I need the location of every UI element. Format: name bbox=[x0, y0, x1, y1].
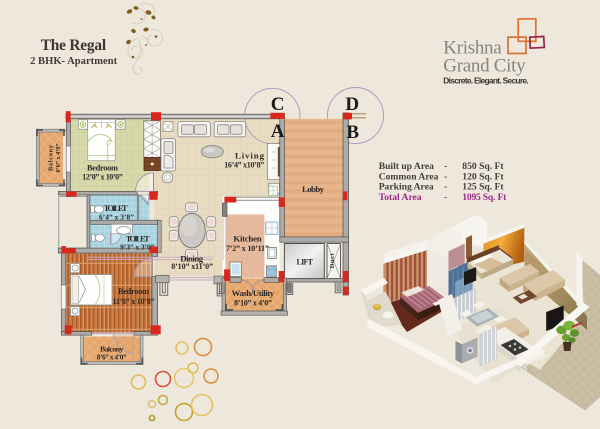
svg-text:D: D bbox=[345, 94, 359, 115]
svg-text:A: A bbox=[271, 121, 285, 142]
svg-text:Bedroom: Bedroom bbox=[118, 287, 149, 296]
svg-text:Wash/Utility: Wash/Utility bbox=[231, 288, 274, 298]
svg-text:Grand City: Grand City bbox=[443, 56, 526, 77]
svg-text:1095 Sq. Ft: 1095 Sq. Ft bbox=[462, 192, 507, 203]
svg-text:11’8” x 10’8”: 11’8” x 10’8” bbox=[113, 297, 155, 306]
svg-text:B: B bbox=[346, 122, 359, 143]
svg-text:The Regal: The Regal bbox=[41, 37, 107, 54]
svg-text:Duct: Duct bbox=[329, 253, 336, 269]
svg-text:8’6” x 4’0”: 8’6” x 4’0” bbox=[97, 354, 127, 362]
svg-text:Kitchen: Kitchen bbox=[233, 234, 261, 244]
svg-text:8’6” x 4’0”: 8’6” x 4’0” bbox=[55, 144, 62, 173]
svg-text:Total Area: Total Area bbox=[379, 192, 422, 203]
svg-text:2 BHK- Apartment: 2 BHK- Apartment bbox=[30, 56, 118, 67]
svg-text:6’4” x 3’8”: 6’4” x 3’8” bbox=[99, 212, 134, 221]
svg-text:-: - bbox=[444, 192, 447, 203]
svg-text:LIFT: LIFT bbox=[297, 257, 314, 266]
svg-text:C: C bbox=[271, 94, 285, 115]
svg-text:8’10” x11’0”: 8’10” x11’0” bbox=[171, 262, 213, 271]
svg-text:Balcony: Balcony bbox=[100, 345, 124, 354]
svg-text:Bedroom: Bedroom bbox=[87, 164, 118, 173]
svg-text:Living: Living bbox=[235, 151, 265, 161]
svg-text:16’4” x10’8”: 16’4” x10’8” bbox=[224, 161, 264, 170]
svg-text:Discrete. Elegant. Secure.: Discrete. Elegant. Secure. bbox=[443, 76, 528, 86]
svg-text:12’0” x 10’0”: 12’0” x 10’0” bbox=[82, 173, 123, 182]
svg-text:9’3” x 3’0”: 9’3” x 3’0” bbox=[120, 243, 155, 252]
svg-text:Balcony: Balcony bbox=[48, 144, 55, 171]
svg-text:7’2” x 10’11”: 7’2” x 10’11” bbox=[226, 244, 269, 253]
svg-text:8’10” x 4’0”: 8’10” x 4’0” bbox=[234, 298, 272, 307]
svg-text:Lobby: Lobby bbox=[302, 184, 325, 194]
